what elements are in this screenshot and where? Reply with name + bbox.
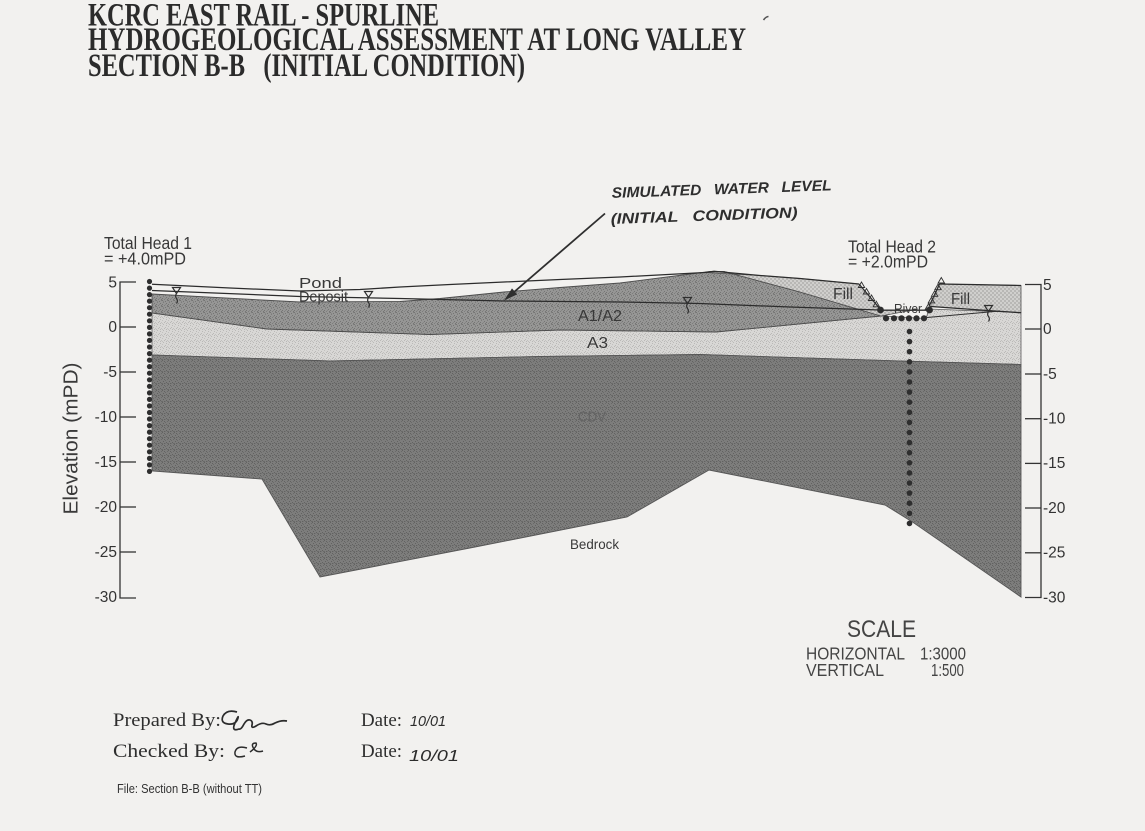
svg-text:A1/A2: A1/A2 [578, 308, 622, 325]
svg-text:SIMULATED WATER LEVEL: SIMULATED WATER LEVEL [611, 177, 831, 202]
svg-text:Deposit: Deposit [299, 289, 349, 306]
svg-text:0: 0 [108, 319, 117, 336]
svg-text:1:500: 1:500 [931, 660, 964, 680]
svg-text:-25: -25 [1043, 545, 1065, 562]
svg-text:CDV: CDV [578, 410, 606, 426]
svg-text:(INITIAL CONDITION): (INITIAL CONDITION) [610, 204, 797, 228]
svg-text:Elevation (mPD): Elevation (mPD) [61, 363, 83, 515]
svg-text:10/01: 10/01 [410, 713, 446, 730]
svg-text:5: 5 [1043, 277, 1052, 294]
svg-text:-15: -15 [95, 454, 117, 471]
svg-text:-30: -30 [1043, 590, 1066, 607]
svg-text:Date:: Date: [361, 741, 402, 762]
svg-text:Prepared By:: Prepared By: [113, 710, 221, 731]
svg-text:Date:: Date: [361, 710, 402, 731]
svg-text:-25: -25 [95, 544, 117, 561]
svg-text:0: 0 [1043, 321, 1052, 338]
svg-text:-10: -10 [95, 409, 118, 426]
svg-text:A3: A3 [587, 335, 608, 352]
svg-text:-5: -5 [103, 364, 117, 381]
svg-text:SECTION B-B (INITIAL CONDITI: SECTION B-B (INITIAL CONDITION) [88, 48, 525, 84]
svg-text:10/01: 10/01 [409, 748, 459, 765]
svg-text:-20: -20 [1043, 500, 1066, 517]
svg-text:= +2.0mPD: = +2.0mPD [848, 252, 928, 272]
svg-text:-5: -5 [1043, 366, 1057, 383]
svg-text:-15: -15 [1043, 455, 1065, 472]
svg-text:File: Section B-B (without TT): File: Section B-B (without TT) [117, 782, 262, 796]
svg-text:-10: -10 [1043, 411, 1066, 428]
svg-text:SCALE: SCALE [847, 616, 916, 643]
svg-text:5: 5 [108, 275, 117, 292]
svg-text:Bedrock: Bedrock [570, 536, 620, 552]
svg-text:= +4.0mPD: = +4.0mPD [104, 249, 186, 269]
svg-text:-30: -30 [95, 589, 118, 606]
svg-text:VERTICAL: VERTICAL [806, 660, 884, 680]
svg-text:River: River [894, 301, 923, 316]
svg-text:Fill: Fill [833, 286, 853, 303]
svg-text:Fill: Fill [951, 291, 970, 308]
svg-text:-20: -20 [95, 499, 118, 516]
svg-text:Checked By:: Checked By: [113, 741, 225, 762]
